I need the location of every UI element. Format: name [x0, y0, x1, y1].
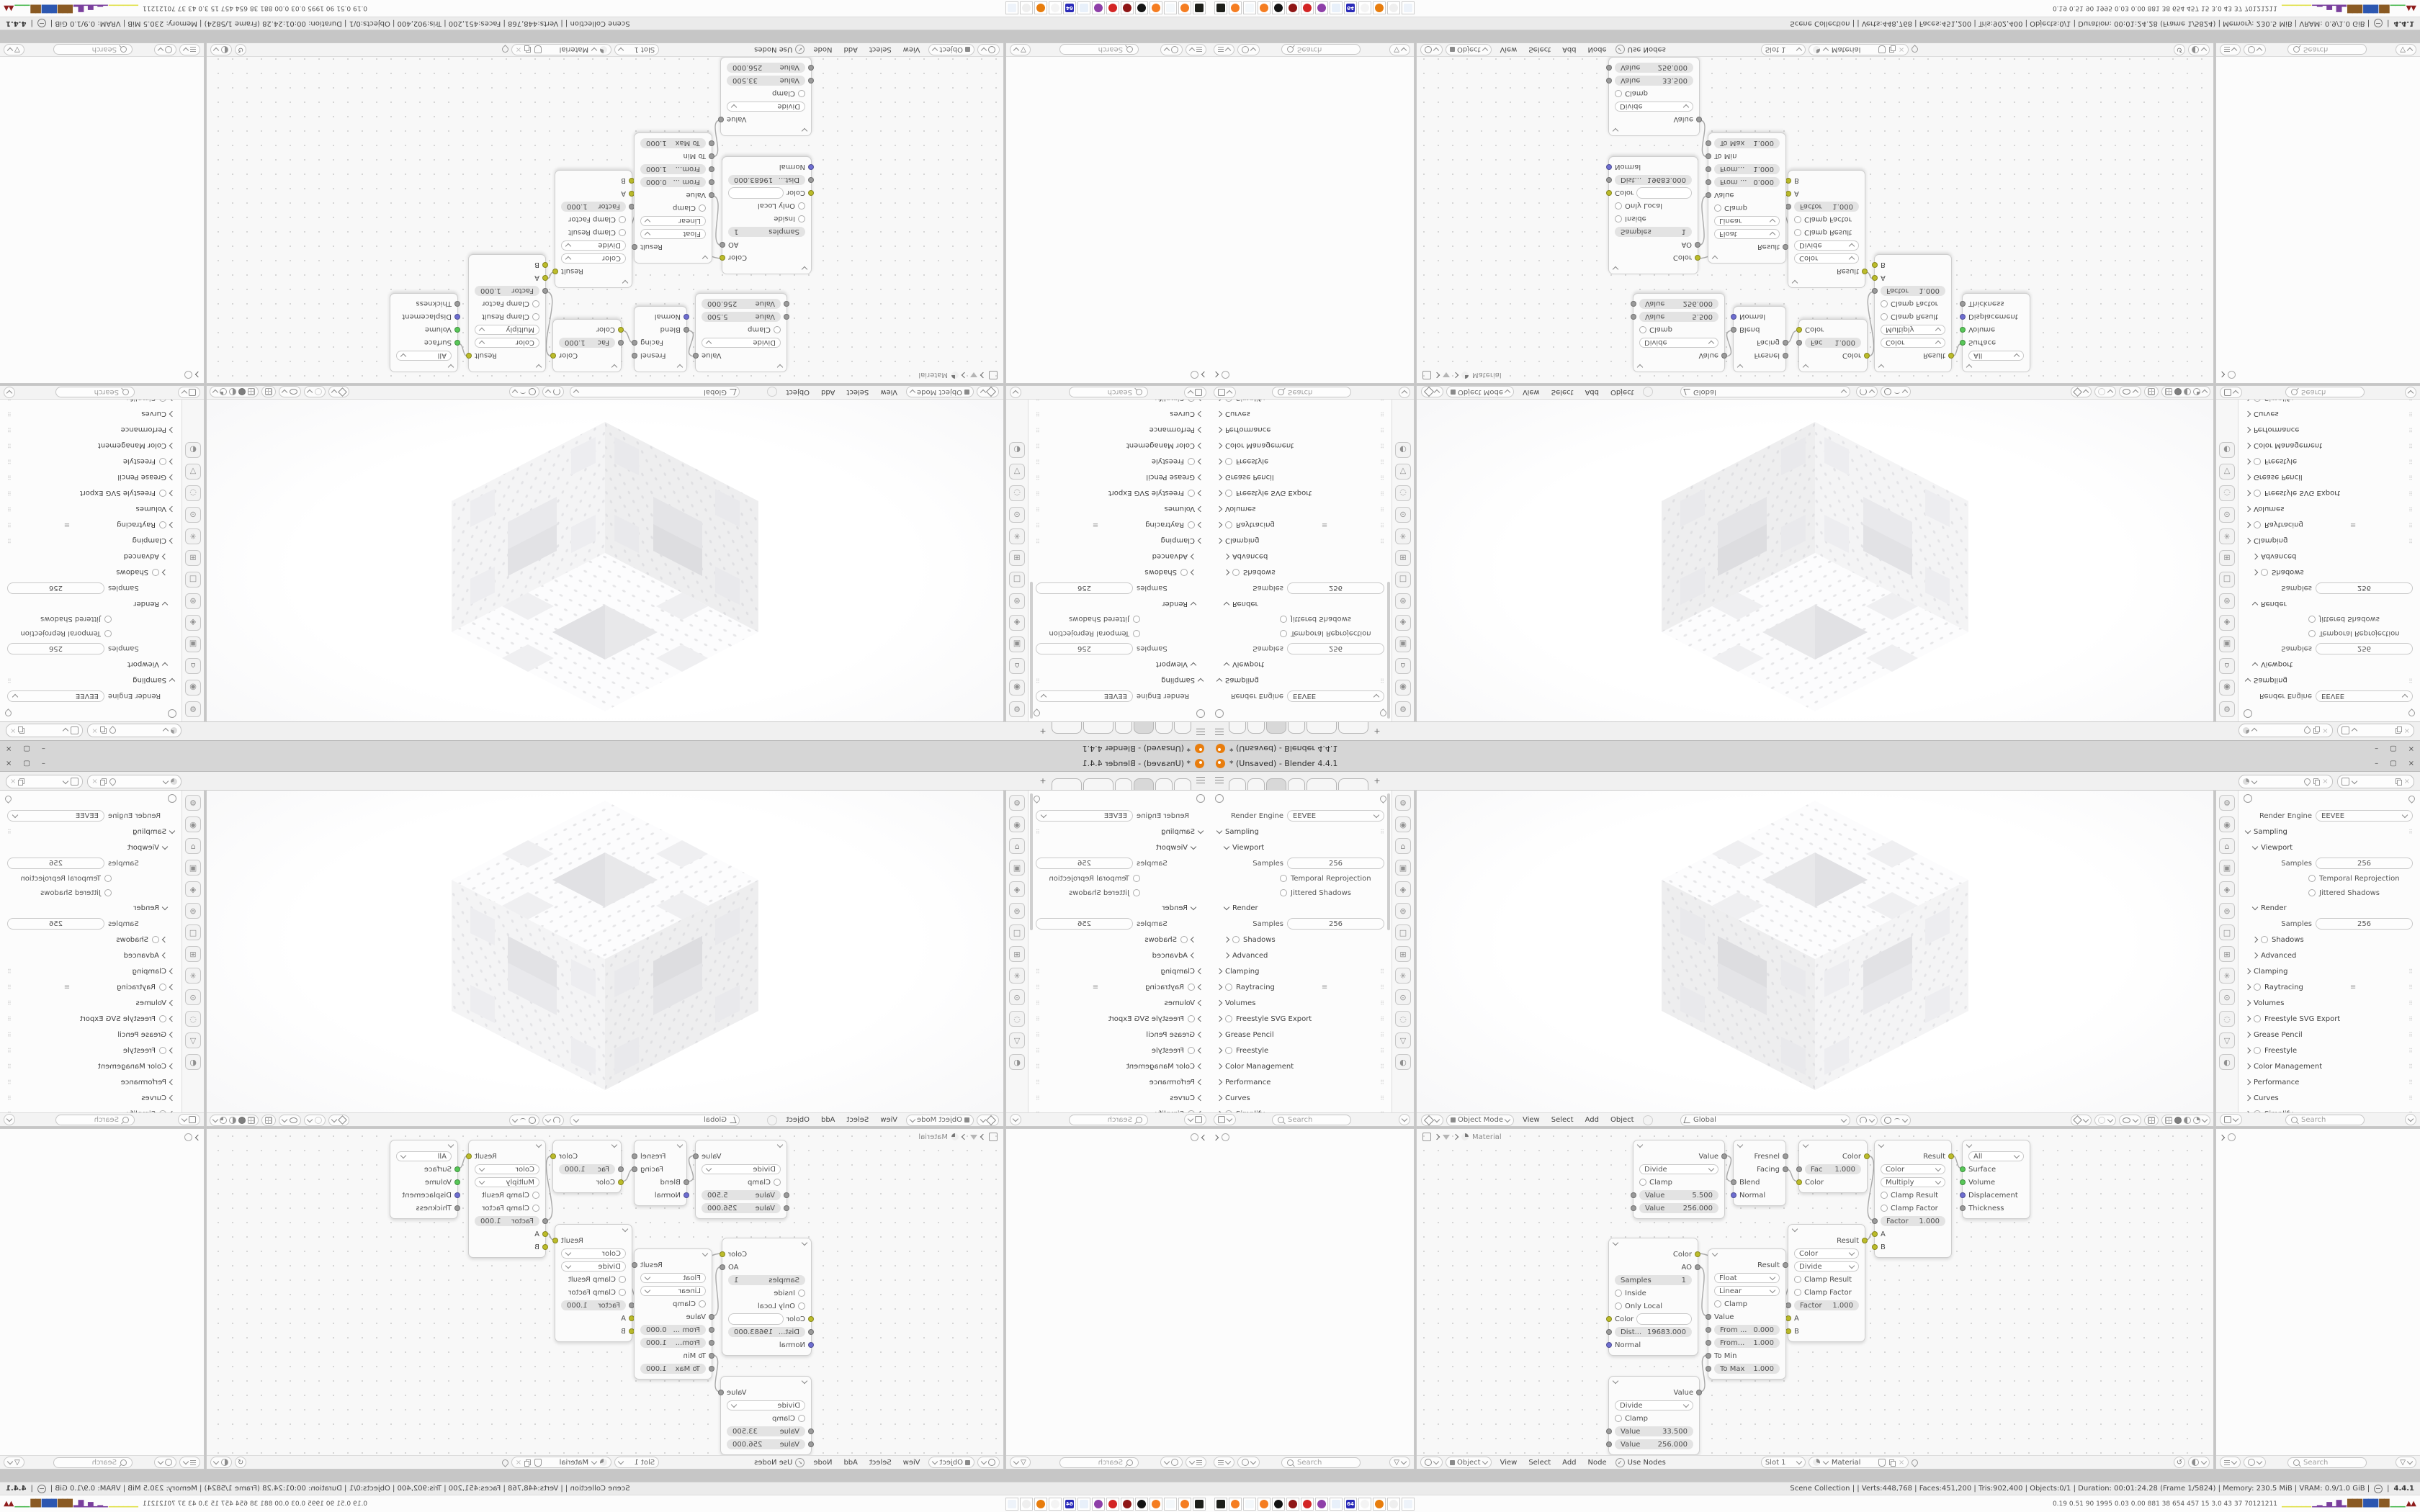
value-field[interactable]: Factor1.000	[561, 202, 626, 212]
scrollbar[interactable]	[1387, 582, 1390, 719]
color-swatch[interactable]	[728, 187, 784, 199]
checkbox[interactable]	[532, 313, 539, 320]
node-header[interactable]	[721, 126, 811, 135]
node-row-color[interactable]: Color	[1788, 252, 1865, 265]
display-mode-button[interactable]	[2220, 1457, 2241, 1468]
properties-tab-icon[interactable]: ◌	[2219, 485, 2235, 501]
shading-mode-group[interactable]	[2161, 1115, 2210, 1126]
copy-icon[interactable]	[1889, 1459, 1895, 1466]
outliner-right[interactable]: Search ▽	[0, 43, 204, 383]
slot-dropdown[interactable]: Slot 1	[614, 44, 659, 55]
input-socket[interactable]	[1606, 190, 1612, 196]
taskbar-icon-gimp[interactable]	[1020, 1498, 1033, 1511]
visibility-toggle[interactable]	[279, 1115, 301, 1126]
checkbox[interactable]	[532, 1192, 539, 1199]
pin-icon[interactable]	[2407, 794, 2416, 804]
node-row-samples[interactable]: Samples1	[722, 225, 811, 238]
material-name[interactable]: Material	[545, 46, 588, 54]
checkbox[interactable]	[532, 300, 539, 307]
taskbar-icon-docs[interactable]	[1402, 2, 1415, 15]
prop-simplify[interactable]: Simplify⠿	[1033, 400, 1210, 406]
viewport-menu[interactable]: View	[1517, 388, 1546, 396]
node-dropdown[interactable]: Divide	[1794, 1261, 1859, 1272]
node-row-multiply[interactable]: Multiply	[469, 323, 545, 336]
input-socket[interactable]	[709, 153, 714, 159]
input-socket[interactable]	[1785, 204, 1791, 210]
editor-type-button[interactable]	[1420, 1457, 1443, 1468]
input-socket[interactable]	[1872, 288, 1878, 294]
node-editor-menu[interactable]: View	[897, 46, 926, 54]
collapse-icon[interactable]	[622, 1225, 628, 1231]
checkbox[interactable]	[1188, 1047, 1195, 1054]
output-socket[interactable]	[720, 255, 725, 261]
input-socket[interactable]	[808, 177, 814, 183]
taskbar-icon-inkscape[interactable]	[1272, 1498, 1285, 1511]
filter-funnel-button[interactable]: ▽	[2396, 44, 2416, 55]
properties-tab-icon[interactable]: ⚙	[1395, 701, 1411, 717]
scene-name-field[interactable]	[119, 726, 161, 734]
input-socket[interactable]	[1606, 1342, 1612, 1348]
prop-viewport[interactable]: Viewport	[4, 657, 181, 672]
number-field[interactable]: 256	[1036, 643, 1133, 654]
collapse-icon[interactable]	[702, 256, 708, 261]
add-workspace-button[interactable]: +	[1372, 726, 1382, 736]
filter-restrict-button[interactable]	[1160, 1457, 1183, 1468]
collapse-icon[interactable]	[1712, 1250, 1718, 1256]
collapse-icon[interactable]	[448, 364, 454, 370]
prop-temporal-reprojection[interactable]: Temporal Reprojection	[2238, 871, 2416, 886]
filter-restrict-button[interactable]	[2244, 1457, 2266, 1468]
pin-icon[interactable]	[4, 709, 13, 719]
pin-icon[interactable]	[2407, 709, 2416, 719]
prop-render-engine[interactable]: Render EngineEEVEE	[2238, 688, 2416, 704]
node-header[interactable]	[1609, 264, 1698, 274]
output-socket[interactable]	[550, 1153, 556, 1159]
checkbox[interactable]	[2308, 630, 2316, 637]
prop-temporal-reprojection[interactable]: Temporal Reprojection	[1033, 871, 1210, 886]
overlays-toggle[interactable]	[304, 1115, 326, 1126]
properties-tab-icon[interactable]: ⌂	[1009, 838, 1025, 854]
output-socket[interactable]	[1864, 1153, 1870, 1159]
input-socket[interactable]	[618, 327, 624, 333]
pin-icon[interactable]	[108, 726, 117, 735]
taskbar-icon-display[interactable]	[1330, 2, 1343, 15]
properties-tab-icon[interactable]: ◉	[1009, 816, 1025, 832]
node-row-clamp[interactable]: Clamp	[1708, 1297, 1785, 1310]
output-socket[interactable]	[718, 1390, 724, 1395]
unlink-icon[interactable]: ×	[1899, 46, 1904, 54]
properties-tab-icon[interactable]: ◌	[1395, 1011, 1411, 1027]
input-socket[interactable]	[1796, 340, 1802, 346]
input-socket[interactable]	[454, 1192, 460, 1198]
node-row-clamp[interactable]: Clamp	[635, 1297, 712, 1310]
prop-grease-pencil[interactable]: Grease Pencil⠿	[4, 1027, 181, 1043]
node-header[interactable]	[722, 1238, 811, 1248]
taskbar-icon-dosbox[interactable]: 64	[1344, 2, 1357, 15]
number-field[interactable]: 256	[1036, 858, 1133, 869]
checkbox[interactable]	[2308, 889, 2316, 896]
value-field[interactable]: Fac1.000	[1805, 338, 1861, 348]
properties-tab-icon[interactable]: ⚙	[1009, 795, 1025, 811]
proportional-edit-group[interactable]	[1881, 387, 1911, 398]
options-chevron-button[interactable]	[1399, 387, 1410, 398]
input-socket[interactable]	[1606, 164, 1612, 170]
node-dropdown[interactable]: Color	[1881, 338, 1945, 348]
prop-temporal-reprojection[interactable]: Temporal Reprojection	[1210, 871, 1387, 886]
node-row-dist-[interactable]: Dist...19683.000	[722, 1326, 811, 1338]
node-row-factor[interactable]: Factor1.000	[1788, 200, 1865, 213]
shader-node[interactable]: ResultColorMultiplyClamp ResultClamp Fac…	[468, 254, 546, 372]
checkbox[interactable]	[798, 1290, 805, 1297]
node-header[interactable]	[1799, 362, 1867, 372]
node-row-clamp-factor[interactable]: Clamp Factor	[1875, 297, 1951, 310]
viewport-menu[interactable]: Select	[1546, 388, 1579, 396]
input-socket[interactable]	[784, 1205, 789, 1211]
collapse-icon[interactable]	[702, 1250, 708, 1256]
prop-freestyle[interactable]: Freestyle⠿	[2238, 454, 2416, 469]
node-row-divide[interactable]: Divide	[1609, 1399, 1699, 1412]
properties-tab-icon[interactable]: ▽	[185, 1032, 201, 1048]
copy-icon[interactable]	[2313, 727, 2319, 734]
scene-selector[interactable]: ×	[2238, 724, 2332, 737]
node-overlay-toggle[interactable]	[210, 44, 232, 55]
properties-tab-icon[interactable]: ⊞	[1009, 946, 1025, 962]
properties-search[interactable]: Search	[1272, 387, 1351, 398]
prop-clamping[interactable]: Clamping⠿	[1033, 533, 1210, 549]
properties-tab-icon[interactable]: ⊞	[2219, 946, 2235, 962]
output-socket[interactable]	[1862, 1238, 1868, 1243]
checkbox[interactable]	[1225, 490, 1232, 497]
prop-freestyle[interactable]: Freestyle⠿	[1210, 1043, 1387, 1058]
input-socket[interactable]	[454, 340, 460, 346]
node-header[interactable]	[635, 362, 686, 372]
taskbar-icon-gear-red[interactable]	[1301, 1498, 1314, 1511]
prop-samples[interactable]: Samples256	[1033, 580, 1210, 596]
collapse-icon[interactable]	[677, 364, 683, 370]
shader-node[interactable]: ResultColorDivideClamp ResultClamp Facto…	[555, 1224, 632, 1342]
view-layer-selector[interactable]: ×	[2337, 775, 2414, 788]
dropdown[interactable]: EEVEE	[1287, 690, 1384, 702]
prop-shadows[interactable]: Shadows	[2238, 564, 2416, 580]
shading-mode-group[interactable]	[210, 387, 259, 398]
editor-type-button[interactable]	[1184, 1114, 1206, 1125]
node-row-value[interactable]: Value256.000	[721, 1438, 811, 1451]
output-socket[interactable]	[632, 353, 637, 359]
number-field[interactable]: 256	[1287, 858, 1384, 869]
value-field[interactable]: From ...0.000	[640, 177, 706, 187]
unlink-icon[interactable]: ×	[516, 1459, 521, 1467]
input-socket[interactable]	[1796, 327, 1802, 333]
node-grid-background[interactable]: Material ValueDivideClampValue5.500Value…	[207, 1129, 1003, 1455]
node-row-clamp[interactable]: Clamp	[721, 87, 811, 100]
node-dropdown[interactable]: Color	[561, 253, 626, 264]
value-field[interactable]: Value5.500	[702, 1190, 781, 1200]
checkbox[interactable]	[699, 1300, 706, 1308]
input-socket[interactable]	[1785, 178, 1791, 184]
prop-simplify[interactable]: Simplify⠿	[4, 1106, 181, 1112]
properties-tab-icon[interactable]: ◌	[185, 485, 201, 501]
input-socket[interactable]	[709, 1314, 714, 1320]
properties-tab-icon[interactable]: ▣	[1009, 860, 1025, 876]
editor-type-button[interactable]	[977, 1457, 1000, 1468]
dropdown[interactable]: EEVEE	[2316, 690, 2413, 702]
node-row-multiply[interactable]: Multiply	[1875, 323, 1951, 336]
node-row-factor[interactable]: Factor1.000	[469, 1215, 545, 1228]
outliner-search[interactable]: Search	[53, 1457, 133, 1468]
collapse-icon[interactable]	[1613, 1239, 1618, 1245]
node-row-clamp-result[interactable]: Clamp Result	[555, 226, 632, 239]
maximize-button[interactable]: ▢	[23, 744, 30, 752]
properties-tab-icon[interactable]: ⊙	[2219, 507, 2235, 523]
properties-tab-icon[interactable]: ◈	[1395, 615, 1411, 631]
node-header[interactable]	[1633, 1140, 1724, 1150]
close-button[interactable]: ×	[2408, 744, 2414, 752]
viewport-menu[interactable]: View	[1517, 1116, 1546, 1124]
input-socket[interactable]	[1706, 192, 1711, 198]
node-dropdown[interactable]: Linear	[1714, 1286, 1780, 1296]
pin-icon[interactable]	[2303, 777, 2312, 786]
checkbox[interactable]	[159, 521, 166, 528]
properties-tab-icon[interactable]: ◐	[1395, 442, 1411, 458]
node-row-only-local[interactable]: Only Local	[722, 1300, 811, 1313]
prop-clamping[interactable]: Clamping⠿	[2238, 963, 2416, 979]
expand-icon[interactable]	[1213, 372, 1219, 377]
node-row-color[interactable]: Color	[1875, 336, 1951, 349]
node-editor-menu[interactable]: Add	[838, 46, 863, 54]
clear-icon[interactable]: ×	[2404, 726, 2410, 734]
outliner-right[interactable]: Search ▽	[2216, 43, 2420, 383]
prop-volumes[interactable]: Volumes⠿	[2238, 501, 2416, 517]
node-header[interactable]	[1799, 1140, 1867, 1150]
minimize-button[interactable]: –	[42, 760, 45, 768]
checkbox[interactable]	[1225, 458, 1232, 465]
orientation-dropdown[interactable]: Global	[570, 1115, 740, 1126]
prop-raytracing[interactable]: Raytracing≡⠿	[1210, 517, 1387, 533]
checkbox[interactable]	[104, 616, 112, 623]
input-socket[interactable]	[808, 164, 814, 170]
properties-tab-icon[interactable]: ⊞	[185, 550, 201, 566]
input-socket[interactable]	[1731, 1192, 1736, 1198]
outliner-search[interactable]: Search	[1281, 1457, 1361, 1468]
output-socket[interactable]	[1864, 353, 1870, 359]
node-header[interactable]	[1609, 126, 1699, 135]
prop-curves[interactable]: Curves⠿	[4, 406, 181, 422]
node-row-divide[interactable]: Divide	[721, 100, 811, 113]
prop-simplify[interactable]: Simplify⠿	[2238, 1106, 2416, 1112]
editor-type-button[interactable]	[1184, 387, 1206, 398]
checkbox[interactable]	[1225, 1015, 1232, 1022]
properties-tab-icon[interactable]: ⊙	[185, 507, 201, 523]
node-header[interactable]	[722, 264, 811, 274]
prop-temporal-reprojection[interactable]: Temporal Reprojection	[1210, 626, 1387, 641]
overlays-toggle[interactable]	[2094, 387, 2116, 398]
input-socket[interactable]	[709, 1353, 714, 1359]
node-grid-background[interactable]: Material ValueDivideClampValue5.500Value…	[1417, 57, 2213, 383]
checkbox[interactable]	[2254, 984, 2261, 991]
prop-render[interactable]: Render	[4, 596, 181, 612]
shader-type-dropdown[interactable]: Object	[928, 1457, 974, 1468]
material-name[interactable]: Material	[1832, 1459, 1875, 1467]
output-socket[interactable]	[632, 1153, 637, 1159]
prop-shadows[interactable]: Shadows	[1033, 932, 1210, 948]
collapse-icon[interactable]	[536, 1141, 542, 1147]
input-socket[interactable]	[1796, 1179, 1802, 1185]
node-header[interactable]	[635, 253, 712, 263]
scene-selector[interactable]: ×	[87, 775, 181, 788]
taskbar-icon-blender[interactable]	[1373, 1498, 1386, 1511]
prop-simplify[interactable]: Simplify⠿	[2238, 400, 2416, 406]
taskbar-icon-blender[interactable]	[1373, 2, 1386, 15]
input-socket[interactable]	[1706, 179, 1711, 185]
properties-tab-icon[interactable]: ◉	[185, 680, 201, 696]
options-chevron-button[interactable]	[2405, 387, 2416, 398]
prop-freestyle-svg-export[interactable]: Freestyle SVG Export⠿	[4, 485, 181, 501]
input-socket[interactable]	[684, 1179, 689, 1185]
checkbox[interactable]	[1225, 521, 1232, 528]
copy-icon[interactable]	[2396, 778, 2401, 785]
node-dropdown[interactable]: Linear	[1714, 216, 1780, 226]
overlays-toggle[interactable]	[2094, 1115, 2116, 1126]
node-row-clamp-factor[interactable]: Clamp Factor	[469, 1202, 545, 1215]
maximize-button[interactable]: ▢	[2390, 760, 2396, 768]
input-socket[interactable]	[1872, 275, 1878, 281]
prop-freestyle-svg-export[interactable]: Freestyle SVG Export⠿	[1033, 1011, 1210, 1027]
node-header[interactable]	[1609, 1377, 1699, 1386]
snap-group[interactable]	[542, 387, 564, 398]
workspace-tab[interactable]	[1083, 778, 1113, 791]
value-field[interactable]: To Max1.000	[640, 1364, 706, 1374]
prop-samples[interactable]: Samples256	[4, 580, 181, 596]
properties-tab-icon[interactable]: ▣	[185, 860, 201, 876]
node-row-clamp-factor[interactable]: Clamp Factor	[1788, 213, 1865, 226]
input-socket[interactable]	[1960, 301, 1966, 307]
input-socket[interactable]	[1706, 166, 1711, 172]
properties-tab-icon[interactable]: ◈	[1009, 615, 1025, 631]
properties-tab-icon[interactable]: ▣	[2219, 860, 2235, 876]
properties-tab-icon[interactable]: ◐	[1009, 1054, 1025, 1070]
viewport-menu[interactable]: Select	[841, 1116, 874, 1124]
copy-icon[interactable]	[101, 727, 107, 734]
node-row-clamp[interactable]: Clamp	[1609, 87, 1699, 100]
filter-funnel-button[interactable]: ▽	[1010, 1457, 1031, 1468]
properties-tab-icon[interactable]: ⊚	[1395, 903, 1411, 919]
node-row-clamp-factor[interactable]: Clamp Factor	[555, 1286, 632, 1299]
properties-tab-icon[interactable]: ⊞	[1009, 550, 1025, 566]
node-editor-menu[interactable]: View	[1494, 46, 1523, 54]
prop-viewport[interactable]: Viewport	[1210, 657, 1387, 672]
input-socket[interactable]	[784, 301, 789, 307]
prop-freestyle[interactable]: Freestyle⠿	[4, 454, 181, 469]
number-field[interactable]: 256	[2316, 582, 2413, 594]
taskbar-icon-blender[interactable]	[1034, 1498, 1047, 1511]
output-socket[interactable]	[550, 353, 556, 359]
value-field[interactable]: Value33.500	[1615, 76, 1693, 86]
node-row-to-max[interactable]: To Max1.000	[635, 1362, 712, 1375]
collapse-icon[interactable]	[777, 364, 783, 370]
properties-tab-icon[interactable]: ⌂	[2219, 658, 2235, 674]
outliner-search[interactable]: Search	[2287, 1457, 2367, 1468]
value-field[interactable]: Value256.000	[727, 1439, 805, 1449]
node-editor-menu[interactable]: Node	[1582, 46, 1613, 54]
color-swatch[interactable]	[1636, 1313, 1692, 1325]
collapse-icon[interactable]	[1878, 1141, 1884, 1147]
properties-tab-icon[interactable]: ▣	[2219, 636, 2235, 652]
node-header[interactable]	[635, 1249, 712, 1259]
node-row-only-local[interactable]: Only Local	[722, 199, 811, 212]
node-dropdown[interactable]: Divide	[1615, 1400, 1693, 1410]
properties-tab-icon[interactable]: ⊚	[2219, 903, 2235, 919]
outliner-search[interactable]: Search	[53, 45, 133, 55]
node-row-multiply[interactable]: Multiply	[469, 1176, 545, 1189]
output-socket[interactable]	[552, 269, 558, 274]
prop-sampling[interactable]: Sampling⠿	[1033, 672, 1210, 688]
prop-curves[interactable]: Curves⠿	[1210, 406, 1387, 422]
options-chevron-button[interactable]	[1010, 387, 1021, 398]
gizmo-toggle[interactable]	[328, 387, 349, 398]
input-socket[interactable]	[1960, 1192, 1966, 1198]
prop-volumes[interactable]: Volumes⠿	[4, 995, 181, 1011]
prop-render[interactable]: Render	[2238, 596, 2416, 612]
prop-freestyle[interactable]: Freestyle⠿	[2238, 1043, 2416, 1058]
pin-icon[interactable]	[1379, 709, 1388, 719]
viewport-3d[interactable]: Object Mode ViewSelectAddObject Global	[207, 386, 1003, 721]
prop-render[interactable]: Render	[1210, 596, 1387, 612]
value-field[interactable]: Value256.000	[702, 299, 781, 309]
properties-tab-icon[interactable]: ⊚	[2219, 593, 2235, 609]
slot-dropdown[interactable]: Slot 1	[1761, 1457, 1806, 1468]
viewport-menu[interactable]: Add	[815, 388, 841, 396]
value-field[interactable]: Value33.500	[1615, 1426, 1693, 1436]
properties-tab-icon[interactable]: □	[1009, 572, 1025, 588]
input-socket[interactable]	[808, 1441, 814, 1447]
node-row-dist-[interactable]: Dist...19683.000	[722, 174, 811, 186]
workspace-tab[interactable]	[1247, 778, 1265, 791]
shader-node[interactable]: ResultColorDivideClamp ResultClamp Facto…	[555, 170, 632, 288]
input-socket[interactable]	[709, 1366, 714, 1372]
prop-curves[interactable]: Curves⠿	[1210, 1090, 1387, 1106]
properties-tab-icon[interactable]: ⊞	[1395, 946, 1411, 962]
outliner-left[interactable]: Search ▽	[1006, 1129, 1210, 1469]
collapse-icon[interactable]	[802, 128, 807, 134]
shader-node[interactable]: ValueDivideClampValue5.500Value256.000	[695, 293, 787, 372]
node-dropdown[interactable]: Divide	[702, 338, 781, 348]
prop-shadows[interactable]: Shadows	[1210, 932, 1387, 948]
prop-viewport[interactable]: Viewport	[1033, 840, 1210, 855]
node-editor-menu[interactable]: Node	[1582, 1459, 1613, 1467]
prop-freestyle-svg-export[interactable]: Freestyle SVG Export⠿	[2238, 1011, 2416, 1027]
prop-color-management[interactable]: Color Management⠿	[4, 1058, 181, 1074]
collapse-icon[interactable]	[611, 1141, 617, 1147]
checkbox[interactable]	[1225, 984, 1232, 991]
prop-samples[interactable]: Samples256	[1033, 641, 1210, 657]
viewport-menu[interactable]: Select	[841, 388, 874, 396]
value-field[interactable]: From...1.000	[640, 164, 706, 174]
node-grid-background[interactable]: Material ValueDivideClampValue5.500Value…	[1417, 1129, 2213, 1455]
taskbar-icon-notes[interactable]	[1243, 2, 1256, 15]
shader-node[interactable]: ValueDivideClampValue5.500Value256.000	[695, 1140, 787, 1219]
node-row-inside[interactable]: Inside	[722, 212, 811, 225]
shading-mode-group[interactable]	[2161, 387, 2210, 398]
node-dropdown[interactable]: Divide	[1639, 1164, 1718, 1174]
taskbar-icon-terminal[interactable]	[1193, 2, 1206, 15]
properties-tab-icon[interactable]: ▽	[1009, 1032, 1025, 1048]
collapse-icon[interactable]	[1792, 1225, 1798, 1231]
refresh-button[interactable]: ↺	[2174, 44, 2185, 55]
properties-tab-icon[interactable]: ◈	[2219, 615, 2235, 631]
prop-curves[interactable]: Curves⠿	[1033, 406, 1210, 422]
input-socket[interactable]	[542, 288, 548, 294]
node-row-clamp-result[interactable]: Clamp Result	[1788, 226, 1865, 239]
